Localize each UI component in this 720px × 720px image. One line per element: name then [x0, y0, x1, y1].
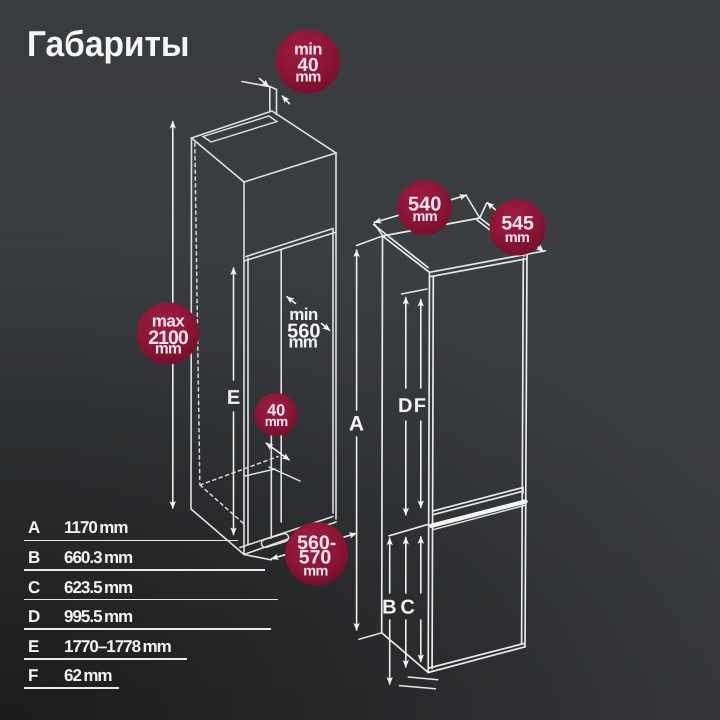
svg-text:mm: mm: [295, 68, 321, 85]
svg-text:mm: mm: [505, 230, 529, 246]
svg-text:mm: mm: [303, 563, 327, 579]
svg-text:B: B: [382, 597, 396, 619]
svg-text:mm: mm: [155, 341, 181, 358]
svg-text:mm: mm: [288, 332, 317, 351]
svg-text:C: C: [400, 597, 414, 619]
svg-text:A: A: [349, 412, 364, 435]
svg-text:F: F: [414, 395, 426, 417]
svg-text:D: D: [398, 395, 412, 417]
svg-text:mm: mm: [265, 414, 288, 429]
svg-text:mm: mm: [412, 209, 436, 225]
svg-text:E: E: [227, 387, 240, 409]
